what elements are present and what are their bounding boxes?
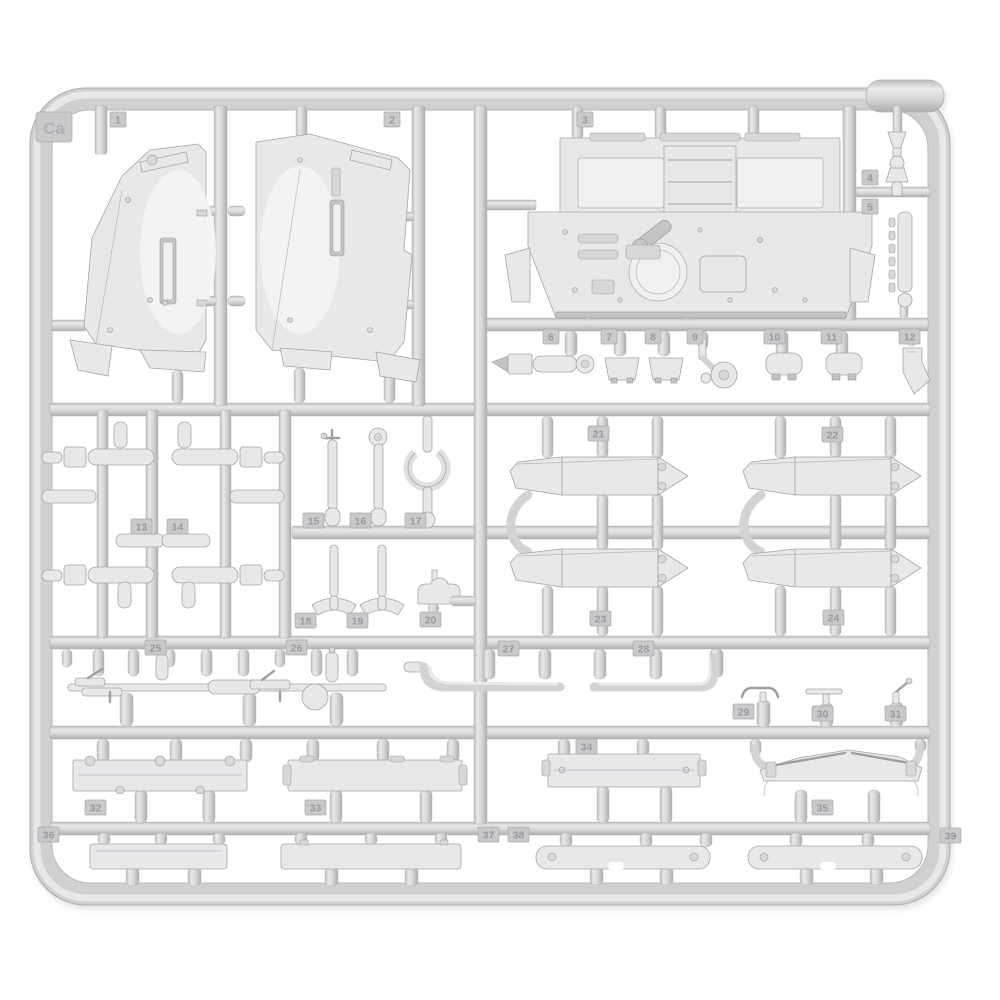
part-bracket-8 — [649, 358, 683, 383]
part-number-tag: 14 — [167, 519, 188, 534]
part-number-tag: 13 — [131, 519, 152, 534]
part-number-tag: 33 — [305, 800, 326, 815]
svg-text:3: 3 — [582, 115, 588, 127]
svg-text:28: 28 — [638, 644, 650, 656]
svg-text:34: 34 — [581, 742, 593, 754]
svg-text:14: 14 — [172, 522, 184, 534]
svg-text:18: 18 — [300, 616, 312, 628]
part-hull-side-right — [256, 134, 420, 382]
svg-text:5: 5 — [867, 202, 873, 214]
part-number-tag: 32 — [85, 800, 106, 815]
svg-text:11: 11 — [826, 332, 837, 344]
part-number-tag: 16 — [350, 513, 371, 528]
part-number-tag: 7 — [601, 329, 617, 344]
part-number-tag: 17 — [405, 513, 426, 528]
part-number-tag: 6 — [543, 329, 559, 344]
part-number-tag: 24 — [823, 610, 844, 625]
svg-text:25: 25 — [150, 643, 162, 655]
svg-text:35: 35 — [817, 803, 829, 815]
svg-text:1: 1 — [115, 115, 121, 127]
part-number-tag: 2 — [384, 112, 400, 127]
svg-text:24: 24 — [828, 613, 840, 625]
part-number-tag: 29 — [733, 704, 754, 719]
svg-text:36: 36 — [43, 830, 55, 842]
part-box-plate-34 — [542, 754, 706, 787]
sprue-photo: Ca — [0, 0, 1000, 1000]
part-number-tag: 37 — [478, 827, 499, 842]
svg-text:9: 9 — [692, 332, 698, 344]
svg-text:15: 15 — [308, 516, 320, 528]
part-number-tag: 5 — [862, 199, 878, 214]
part-number-tag: 23 — [590, 611, 611, 626]
part-hull-top — [505, 133, 875, 318]
svg-text:26: 26 — [291, 643, 303, 655]
part-number-tag: 30 — [812, 706, 833, 721]
part-fender-21 — [510, 457, 688, 495]
svg-text:22: 22 — [827, 430, 839, 442]
svg-text:19: 19 — [352, 616, 364, 628]
part-number-tag: 15 — [303, 513, 324, 528]
part-number-tag: 12 — [899, 329, 920, 344]
part-number-tag: 20 — [420, 612, 441, 627]
part-strip-c — [536, 846, 710, 870]
part-number-tag: 9 — [687, 329, 703, 344]
part-fender-24 — [743, 549, 921, 587]
sprue-letter-tab: Ca — [36, 112, 72, 142]
part-number-tag: 26 — [286, 640, 307, 655]
svg-text:32: 32 — [90, 803, 102, 815]
part-fender-23 — [510, 549, 688, 587]
sprue-drawing: Ca — [0, 0, 1000, 1000]
part-strip-a — [90, 844, 227, 869]
part-number-tag: 38 — [508, 827, 529, 842]
svg-text:31: 31 — [890, 709, 902, 721]
part-number-tag: 28 — [633, 641, 654, 656]
part-bracket-7 — [605, 358, 639, 383]
svg-text:20: 20 — [425, 615, 437, 627]
svg-text:30: 30 — [817, 709, 829, 721]
svg-text:21: 21 — [593, 429, 605, 441]
svg-text:2: 2 — [389, 115, 395, 127]
part-strip-d — [748, 846, 922, 870]
part-number-tag: 4 — [862, 170, 878, 185]
part-number-tag: 27 — [498, 641, 519, 656]
sprue-top-lug — [866, 80, 944, 112]
svg-text:37: 37 — [483, 830, 495, 842]
part-number-tag: 3 — [577, 112, 593, 127]
part-number-tag: 1 — [110, 112, 126, 127]
svg-text:10: 10 — [769, 332, 781, 344]
part-number-tag: 34 — [576, 739, 597, 754]
part-number-tag: 39 — [940, 828, 961, 843]
svg-text:39: 39 — [945, 831, 957, 843]
part-number-tag: 31 — [885, 706, 906, 721]
part-number-tag: 18 — [295, 613, 316, 628]
part-strip-b — [281, 840, 461, 869]
svg-text:13: 13 — [136, 522, 148, 534]
svg-text:17: 17 — [410, 516, 422, 528]
part-number-tag: 36 — [38, 827, 59, 842]
part-number-tag: 8 — [645, 329, 661, 344]
part-number-tag: 22 — [822, 427, 843, 442]
svg-text:6: 6 — [548, 332, 554, 344]
svg-text:16: 16 — [355, 516, 367, 528]
part-plate-32 — [73, 756, 247, 794]
svg-text:7: 7 — [606, 332, 612, 344]
svg-text:4: 4 — [867, 173, 873, 185]
svg-text:33: 33 — [310, 803, 322, 815]
part-number-tag: 35 — [812, 800, 833, 815]
svg-text:8: 8 — [650, 332, 656, 344]
svg-text:38: 38 — [513, 830, 525, 842]
part-number-tag: 11 — [821, 329, 842, 344]
part-plate-33 — [283, 756, 467, 791]
part-number-tag: 25 — [145, 640, 166, 655]
svg-text:27: 27 — [503, 644, 515, 656]
part-fender-22 — [743, 457, 921, 495]
svg-text:29: 29 — [738, 707, 750, 719]
sprue-letter: Ca — [43, 119, 65, 138]
svg-text:12: 12 — [904, 332, 916, 344]
part-number-tag: 10 — [764, 329, 785, 344]
part-number-tag: 21 — [588, 426, 609, 441]
part-number-tag: 19 — [347, 613, 368, 628]
svg-text:23: 23 — [595, 614, 607, 626]
